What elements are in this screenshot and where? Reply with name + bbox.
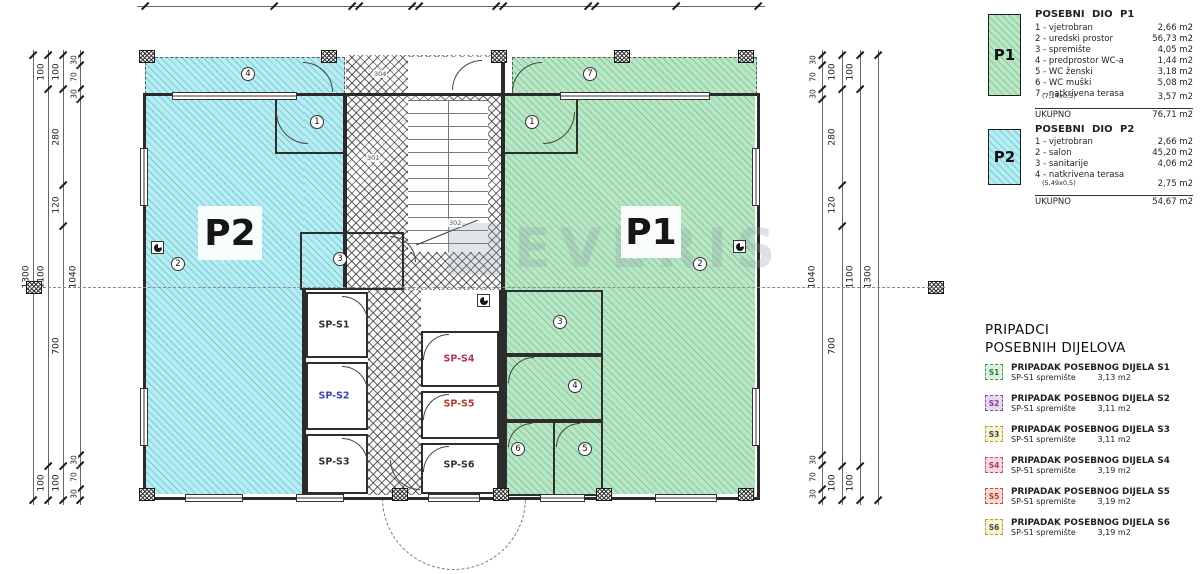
pripadak-swatch: S5 [985,488,1003,504]
pillar [738,488,754,501]
pripadak-swatch: S2 [985,395,1003,411]
legend-swatch-p2: P2 [988,129,1021,185]
dim-label: 120 [53,194,62,215]
legend-row-value: 45,20 m2 [1152,148,1193,159]
legend-row-name: 5 - WC ženski [1035,67,1093,78]
legend-row-name: 1 - vjetrobran [1035,23,1093,34]
pripadak-item: S5 PRIPADAK POSEBNOG DIJELA S5 SP-S1 spr… [985,487,1197,518]
room-marker-p1-1: 1 [525,115,539,129]
detector-icon [733,240,746,253]
pripadak-text: PRIPADAK POSEBNOG DIJELA S3 SP-S1 spremi… [1011,425,1170,445]
legend-total-p2: UKUPNO 54,67 m2 [1035,197,1193,207]
legend-row-value: 1,44 m2 [1158,56,1193,67]
pripadak-text: PRIPADAK POSEBNOG DIJELA S2 SP-S1 spremi… [1011,394,1170,414]
dim-label: 100 [829,472,838,493]
right-dim-chain-4 [822,50,823,505]
storage-label-sp-s2: SP-S2 [318,391,349,402]
window [140,388,148,446]
pillar [139,488,155,501]
left-dim-chain-2 [48,50,49,505]
legend-row-value: 4,05 m2 [1158,45,1193,56]
legend-row: 1 - vjetrobran 2,66 m2 [1035,137,1193,148]
pripadci-heading-line2: POSEBNIH DIJELOVA [985,340,1126,356]
pripadak-area: 3,19 m2 [1098,466,1131,475]
pripadak-name: SP-S1 spremište [1011,373,1095,383]
pillar [614,50,630,63]
legend-row: 4 - predprostor WC-a 1,44 m2 [1035,56,1193,67]
dim-label: 100 [38,472,47,493]
pripadak-title: PRIPADAK POSEBNOG DIJELA S3 [1011,425,1170,435]
legend-note-name: (7,14x0,5) [1035,92,1076,102]
window [185,494,243,502]
pillar [738,50,754,63]
legend-row-value: 4,06 m2 [1158,159,1193,170]
pillar [139,50,155,63]
room-marker-p2-4: 4 [241,67,255,81]
dim-label: 70 [809,70,817,84]
dim-label: 30 [809,87,817,101]
pripadak-item: S4 PRIPADAK POSEBNOG DIJELA S4 SP-S1 spr… [985,456,1197,487]
legend-row-value: 2,66 m2 [1158,23,1193,34]
legend-row: 2 - uredski prostor 56,73 m2 [1035,34,1193,45]
pillar [493,488,509,501]
dim-label: 700 [53,335,62,356]
pripadak-name: SP-S1 spremište [1011,528,1095,538]
room-marker-p1-3: 3 [553,315,567,329]
pillar [596,488,612,501]
pripadak-name: SP-S1 spremište [1011,404,1095,414]
legend-row: 3 - spremište 4,05 m2 [1035,45,1193,56]
legend-row: 1 - vjetrobran 2,66 m2 [1035,23,1193,34]
dim-label: 30 [70,487,78,501]
unit-label-p1: P1 [621,206,681,258]
room-p2-sanitarije [300,232,404,290]
dim-label: 30 [809,487,817,501]
dim-label: 100 [829,61,838,82]
storage-label-sp-s5: SP-S5 [443,399,474,410]
pripadak-name: SP-S1 spremište [1011,466,1095,476]
dim-label: 100 [847,472,856,493]
legend-row-name: 4 - predprostor WC-a [1035,56,1124,67]
legend-row-name: 6 - WC muški [1035,78,1091,89]
legend-total-label: UKUPNO [1035,110,1071,120]
dim-label: 280 [53,126,62,147]
pripadci-list: S1 PRIPADAK POSEBNOG DIJELA S1 SP-S1 spr… [985,363,1197,549]
right-dim-chain-2 [860,50,861,505]
pillar [491,50,507,63]
floor-plan-drawing: 1300 100 1100 100 100 280 120 700 100 30… [0,0,1200,574]
dim-label: 280 [829,126,838,147]
legend-row: 2 - salon 45,20 m2 [1035,148,1193,159]
storage-label-sp-s6: SP-S6 [443,460,474,471]
legend-note-value: 3,57 m2 [1158,92,1193,102]
pripadak-area: 3,11 m2 [1098,404,1131,413]
pripadak-name: SP-S1 spremište [1011,497,1095,507]
room-marker-p2-3: 3 [333,252,347,266]
legend-row-value: 56,73 m2 [1152,34,1193,45]
room-marker-p2-2: 2 [171,257,185,271]
pripadak-area: 3,19 m2 [1098,528,1131,537]
pripadak-item: S3 PRIPADAK POSEBNOG DIJELA S3 SP-S1 spr… [985,425,1197,456]
legend-row: 5 - WC ženski 3,18 m2 [1035,67,1193,78]
legend-rows-p2: 1 - vjetrobran 2,66 m2 2 - salon 45,20 m… [1035,137,1193,181]
right-dim-chain-overall [878,50,879,505]
right-dim-chain-3 [842,50,843,505]
storage-label-sp-s3: SP-S3 [318,457,349,468]
dim-label: 70 [809,470,817,484]
room-marker-p1-6: 6 [511,442,525,456]
pripadak-item: S6 PRIPADAK POSEBNOG DIJELA S6 SP-S1 spr… [985,518,1197,549]
dim-label: 30 [809,453,817,467]
room-marker-p1-2: 2 [693,257,707,271]
left-dim-chain-overall [33,50,34,505]
left-dim-chain-3 [63,50,64,505]
window [428,494,480,502]
window [560,92,710,100]
window [540,494,585,502]
legend-row-value: 2,66 m2 [1158,137,1193,148]
dim-label: 70 [70,470,78,484]
pripadak-area: 3,11 m2 [1098,435,1131,444]
pripadak-swatch: S6 [985,519,1003,535]
pripadak-swatch: S1 [985,364,1003,380]
window [752,148,760,206]
legend-total-label: UKUPNO [1035,197,1071,207]
window [655,494,717,502]
pripadak-title: PRIPADAK POSEBNOG DIJELA S6 [1011,518,1170,528]
detector-icon [151,241,164,254]
dim-label: 100 [38,61,47,82]
room-marker-p2-1: 1 [310,115,324,129]
unit-label-p2: P2 [198,206,262,260]
dim-label: 70 [70,70,78,84]
legend-note-p1: (7,14x0,5) 3,57 m2 [1035,92,1193,102]
stair-room-label: 302 [448,219,462,227]
entrance-arc [381,499,529,571]
storage-label-sp-s4: SP-S4 [443,354,474,365]
pripadak-item: S2 PRIPADAK POSEBNOG DIJELA S2 SP-S1 spr… [985,394,1197,425]
dim-label: 30 [70,87,78,101]
legend-row-name: 2 - salon [1035,148,1071,159]
pripadci-heading: PRIPADCI POSEBNIH DIJELOVA [985,321,1126,357]
dim-label: 30 [70,453,78,467]
pillar [392,488,408,501]
pripadak-swatch: S3 [985,426,1003,442]
pillar [321,50,337,63]
legend-row-value: 5,08 m2 [1158,78,1193,89]
window [296,494,344,502]
room-marker-p1-5: 5 [578,442,592,456]
legend-row-name: 1 - vjetrobran [1035,137,1093,148]
pripadak-area: 3,13 m2 [1098,373,1131,382]
top-dimension-line [137,6,765,7]
left-dim-chain-4 [80,50,81,505]
terrace-p1 [512,57,757,94]
pripadak-swatch: S4 [985,457,1003,473]
stair-room-label: 304 [373,70,387,78]
legend-note-value: 2,75 m2 [1158,179,1193,189]
dim-label: 100 [53,472,62,493]
dim-label: 30 [70,53,78,67]
pripadak-text: PRIPADAK POSEBNOG DIJELA S1 SP-S1 spremi… [1011,363,1170,383]
dim-label: 100 [847,61,856,82]
legend-total-value: 76,71 m2 [1152,110,1193,120]
storage-label-sp-s1: SP-S1 [318,320,349,331]
pripadak-name: SP-S1 spremište [1011,435,1095,445]
window [140,148,148,206]
pripadak-item: S1 PRIPADAK POSEBNOG DIJELA S1 SP-S1 spr… [985,363,1197,394]
legend-row-name: 3 - spremište [1035,45,1091,56]
pripadak-title: PRIPADAK POSEBNOG DIJELA S5 [1011,487,1170,497]
pripadci-heading-line1: PRIPADCI [985,322,1049,338]
section-line [28,287,945,288]
pripadak-title: PRIPADAK POSEBNOG DIJELA S4 [1011,456,1170,466]
room-marker-p1-7: 7 [583,67,597,81]
room-marker-p1-4: 4 [568,379,582,393]
detector-icon [477,294,490,307]
pripadak-text: PRIPADAK POSEBNOG DIJELA S4 SP-S1 spremi… [1011,456,1170,476]
dim-label: 30 [809,53,817,67]
legend-note-p2: (5,49x0,5) 2,75 m2 [1035,179,1193,189]
legend-row: 6 - WC muški 5,08 m2 [1035,78,1193,89]
window [752,388,760,446]
pripadak-text: PRIPADAK POSEBNOG DIJELA S5 SP-S1 spremi… [1011,487,1170,507]
pripadak-text: PRIPADAK POSEBNOG DIJELA S6 SP-S1 spremi… [1011,518,1170,538]
wall-stair-p1 [501,57,505,290]
stair-room-label: 301 [366,154,380,162]
legend-row-name: 3 - sanitarije [1035,159,1088,170]
legend-row-name: 2 - uredski prostor [1035,34,1113,45]
legend-row: 3 - sanitarije 4,06 m2 [1035,159,1193,170]
dim-label: 120 [829,194,838,215]
legend-note-name: (5,49x0,5) [1035,179,1076,189]
legend-rule [1035,108,1193,109]
window [172,92,297,100]
pripadak-title: PRIPADAK POSEBNOG DIJELA S1 [1011,363,1170,373]
legend-title-p1: POSEBNI DIO P1 [1035,9,1134,20]
legend-title-p2: POSEBNI DIO P2 [1035,124,1134,135]
legend-rule [1035,195,1193,196]
legend-swatch-p1: P1 [988,14,1021,96]
dim-label: 700 [829,335,838,356]
legend-row-value: 3,18 m2 [1158,67,1193,78]
pripadak-area: 3,19 m2 [1098,497,1131,506]
pripadak-title: PRIPADAK POSEBNOG DIJELA S2 [1011,394,1170,404]
dim-label: 100 [53,61,62,82]
legend-total-p1: UKUPNO 76,71 m2 [1035,110,1193,120]
legend-rows-p1: 1 - vjetrobran 2,66 m2 2 - uredski prost… [1035,23,1193,100]
legend-total-value: 54,67 m2 [1152,197,1193,207]
